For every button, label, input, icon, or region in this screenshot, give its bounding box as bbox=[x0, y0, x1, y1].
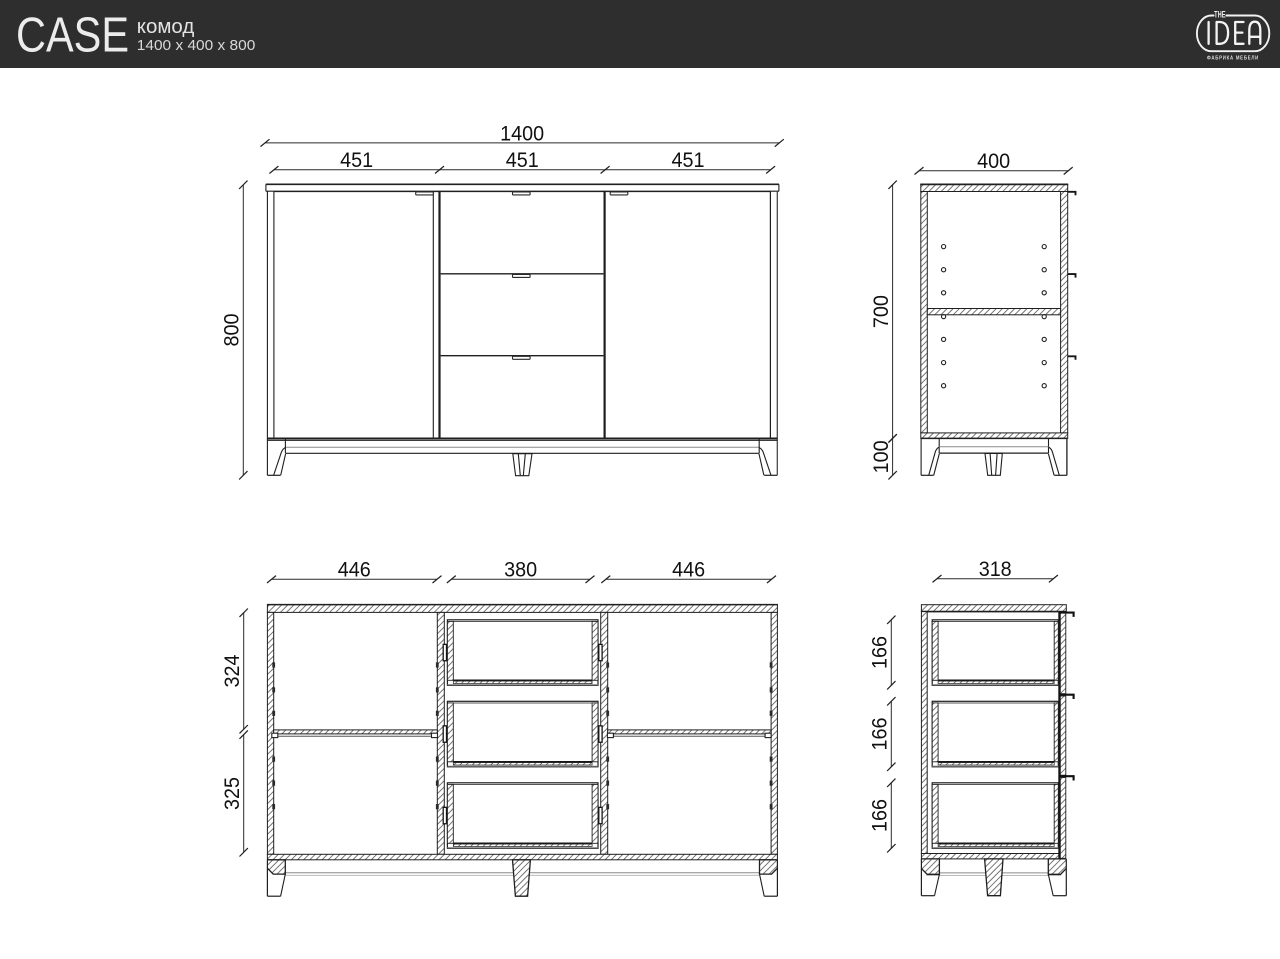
svg-text:446: 446 bbox=[338, 558, 371, 582]
svg-text:CASE: CASE bbox=[16, 9, 129, 63]
svg-text:700: 700 bbox=[869, 295, 893, 328]
svg-text:1400: 1400 bbox=[500, 121, 544, 145]
svg-text:166: 166 bbox=[868, 636, 892, 669]
svg-text:166: 166 bbox=[868, 799, 892, 832]
svg-text:451: 451 bbox=[672, 148, 705, 172]
svg-text:800: 800 bbox=[220, 314, 244, 347]
svg-text:комод: комод bbox=[137, 15, 195, 38]
svg-text:446: 446 bbox=[672, 558, 705, 582]
svg-text:451: 451 bbox=[506, 148, 539, 172]
svg-text:325: 325 bbox=[220, 777, 244, 810]
svg-text:400: 400 bbox=[977, 149, 1010, 173]
svg-text:ФАБРИКА МЕБЕЛИ: ФАБРИКА МЕБЕЛИ bbox=[1207, 56, 1259, 62]
svg-text:318: 318 bbox=[979, 557, 1012, 581]
svg-text:100: 100 bbox=[869, 440, 893, 473]
svg-text:380: 380 bbox=[504, 558, 537, 582]
svg-text:324: 324 bbox=[220, 654, 244, 687]
svg-text:451: 451 bbox=[340, 148, 373, 172]
svg-text:THE: THE bbox=[1214, 10, 1225, 20]
svg-text:166: 166 bbox=[868, 718, 892, 751]
svg-text:1400 x 400 x 800: 1400 x 400 x 800 bbox=[137, 38, 256, 54]
